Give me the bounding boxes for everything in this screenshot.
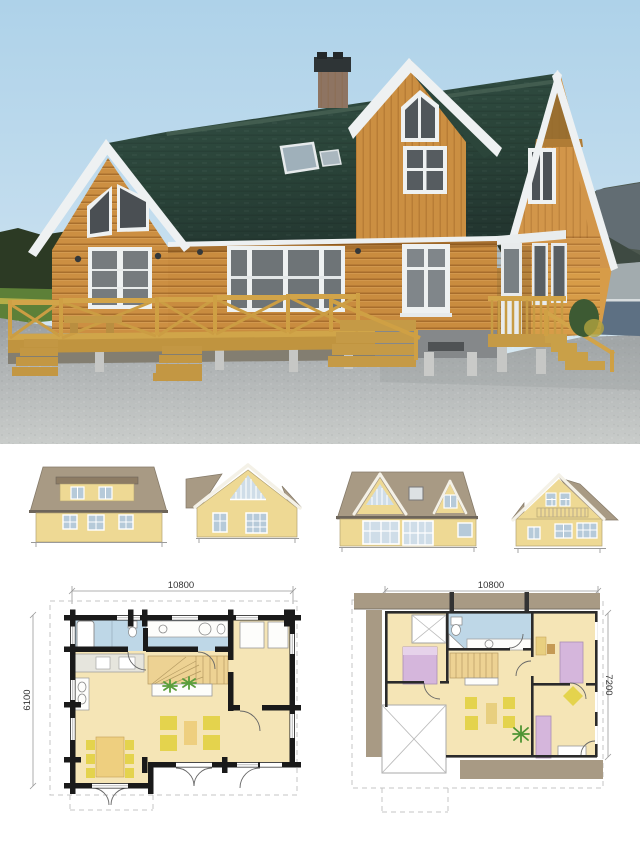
- svg-text:10800: 10800: [478, 580, 504, 591]
- svg-text:6100: 6100: [22, 689, 33, 710]
- svg-text:10800: 10800: [168, 580, 194, 591]
- svg-text:7200: 7200: [603, 674, 614, 695]
